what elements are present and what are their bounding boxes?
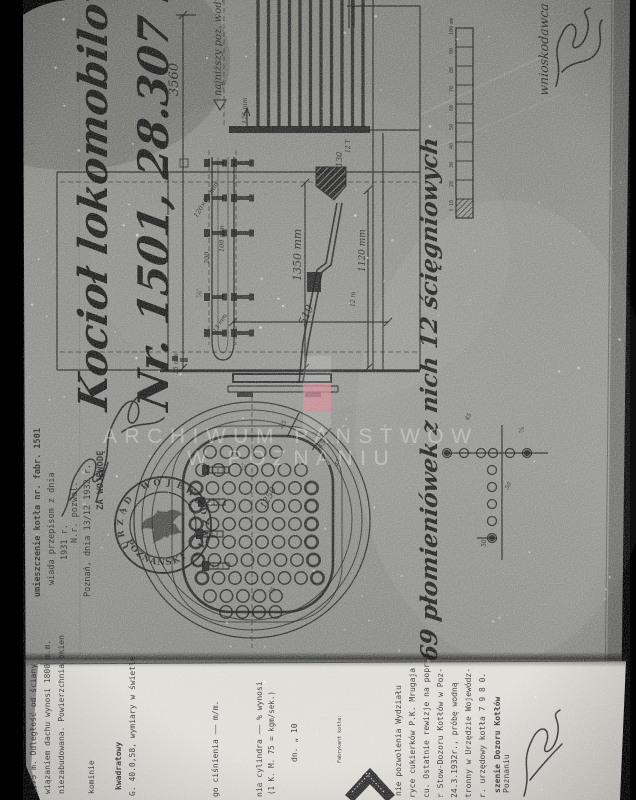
scan-canvas: 3560najniższy poz. wody125 mm120×32 mm10… (0, 0, 636, 800)
film-grain (23, 0, 630, 800)
scanned-document-page: 3560najniższy poz. wody125 mm120×32 mm10… (0, 0, 636, 800)
